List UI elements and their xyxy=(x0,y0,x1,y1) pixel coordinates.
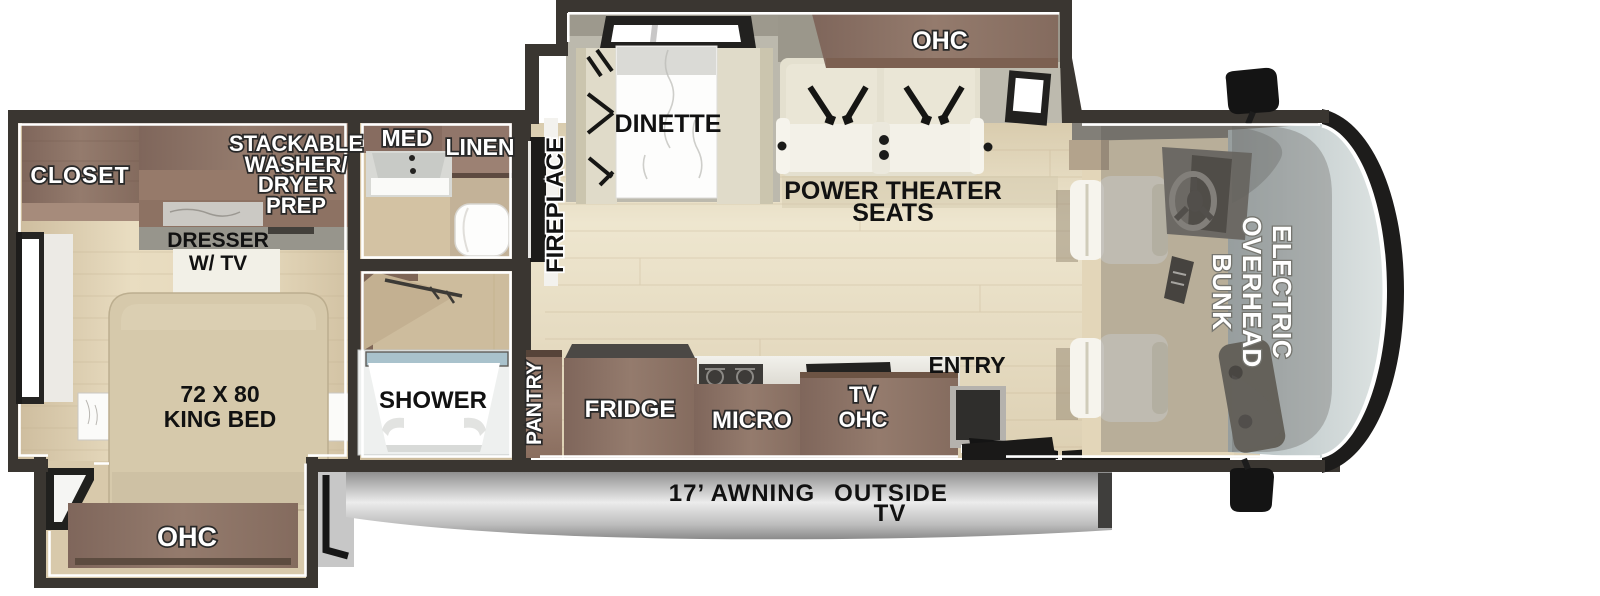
svg-text:PANTRY: PANTRY xyxy=(523,361,546,445)
svg-text:SHOWER: SHOWER xyxy=(379,387,487,414)
svg-text:72 X 80: 72 X 80 xyxy=(180,381,259,407)
svg-text:17’ AWNING: 17’ AWNING xyxy=(669,480,815,507)
svg-text:CLOSET: CLOSET xyxy=(30,162,129,188)
svg-text:OHC: OHC xyxy=(839,407,888,432)
svg-text:OVERHEAD: OVERHEAD xyxy=(1237,216,1267,367)
svg-text:BUNK: BUNK xyxy=(1207,253,1237,330)
svg-text:TV: TV xyxy=(874,500,907,527)
svg-text:SEATS: SEATS xyxy=(852,199,934,227)
svg-text:MED: MED xyxy=(381,125,432,151)
svg-text:ENTRY: ENTRY xyxy=(928,352,1005,378)
svg-text:DINETTE: DINETTE xyxy=(615,110,722,138)
svg-text:OHC: OHC xyxy=(912,27,968,55)
svg-text:PREP: PREP xyxy=(266,193,326,218)
svg-text:DRESSER: DRESSER xyxy=(167,229,269,252)
svg-text:FRIDGE: FRIDGE xyxy=(585,396,676,423)
svg-text:LINEN: LINEN xyxy=(446,134,515,160)
svg-text:OHC: OHC xyxy=(157,522,217,552)
svg-text:ELECTRIC: ELECTRIC xyxy=(1267,225,1297,359)
svg-text:MICRO: MICRO xyxy=(712,407,792,434)
svg-text:TV: TV xyxy=(849,382,877,407)
svg-text:W/ TV: W/ TV xyxy=(189,252,247,275)
svg-text:FIREPLACE: FIREPLACE xyxy=(542,137,569,273)
svg-text:KING BED: KING BED xyxy=(164,406,276,432)
